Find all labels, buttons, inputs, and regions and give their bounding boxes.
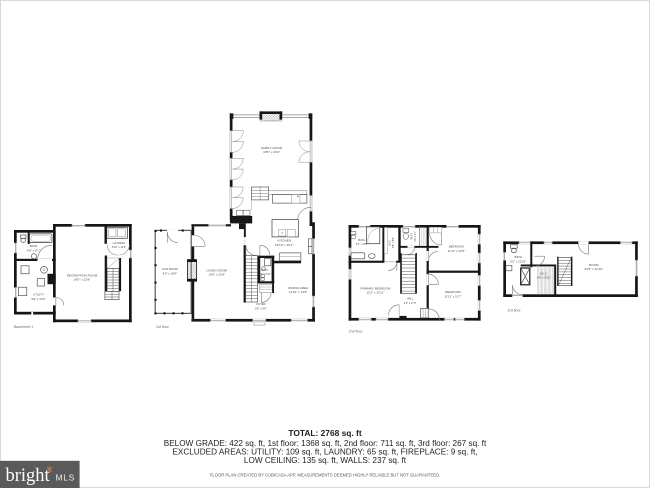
svg-text:bright: bright [6, 466, 51, 486]
svg-text:5'8" x 9'5": 5'8" x 9'5" [255, 306, 267, 310]
svg-text:11'11" x 11'7": 11'11" x 11'7" [444, 294, 461, 298]
svg-text:18'5" x 23'2": 18'5" x 23'2" [263, 150, 280, 154]
svg-text:4'5" x 5'10": 4'5" x 5'10" [259, 273, 271, 276]
svg-text:12'2" x 15'11": 12'2" x 15'11" [366, 291, 384, 295]
svg-text:6'2" x 12'10": 6'2" x 12'10" [510, 259, 526, 263]
svg-text:5'8" x 8'11": 5'8" x 8'11" [537, 276, 551, 280]
svg-text:BATH: BATH [358, 238, 365, 242]
svg-text:MLS: MLS [56, 472, 75, 482]
svg-text:2nd floor: 2nd floor [349, 330, 364, 334]
svg-text:8'6" x 6'1": 8'6" x 6'1" [27, 248, 40, 252]
svg-text:3'8" x 8'8": 3'8" x 8'8" [392, 237, 395, 248]
svg-text:Basement 1: Basement 1 [14, 325, 33, 329]
svg-text:8'5" x 19'8": 8'5" x 19'8" [163, 271, 177, 275]
svg-text:LAUNDRY: LAUNDRY [113, 241, 126, 245]
svg-text:HALL: HALL [407, 297, 414, 301]
svg-text:FOYER: FOYER [256, 302, 265, 306]
svg-text:6'1" x 8'6": 6'1" x 8'6" [356, 242, 368, 246]
svg-text:19'0" x 22'8": 19'0" x 22'8" [74, 278, 91, 282]
svg-text:W.I.C.: W.I.C. [389, 239, 392, 246]
svg-text:9'9" x 12'0": 9'9" x 12'0" [31, 297, 45, 301]
svg-text:5'10" x 11'6": 5'10" x 11'6" [112, 245, 127, 249]
svg-text:11'10" x 13'8": 11'10" x 13'8" [289, 290, 307, 294]
svg-text:24'5" x 12'10": 24'5" x 12'10" [584, 267, 603, 271]
svg-text:TOTAL: 2768 sq. ft: TOTAL: 2768 sq. ft [288, 428, 361, 438]
svg-text:4'6" x 5'1": 4'6" x 5'1" [414, 231, 417, 242]
svg-text:1st floor: 1st floor [156, 325, 170, 329]
svg-text:LOW CEILING: 135 sq. ft, WALLS: LOW CEILING: 135 sq. ft, WALLS: 237 sq. … [244, 456, 407, 465]
svg-text:3rd floor: 3rd floor [508, 309, 522, 313]
svg-text:4'6" x 17'5": 4'6" x 17'5" [404, 301, 417, 305]
svg-text:11'11" x 12'8": 11'11" x 12'8" [448, 249, 465, 253]
svg-text:13'6" x 22'8": 13'6" x 22'8" [208, 273, 225, 277]
svg-text:FLOOR PLAN CREATED BY CUBICASA: FLOOR PLAN CREATED BY CUBICASA APP, MEAS… [210, 472, 440, 477]
svg-text:18'10" x 16'1": 18'10" x 16'1" [275, 243, 294, 247]
svg-text:BATH: BATH [262, 269, 269, 272]
svg-text:BATH: BATH [410, 233, 413, 239]
